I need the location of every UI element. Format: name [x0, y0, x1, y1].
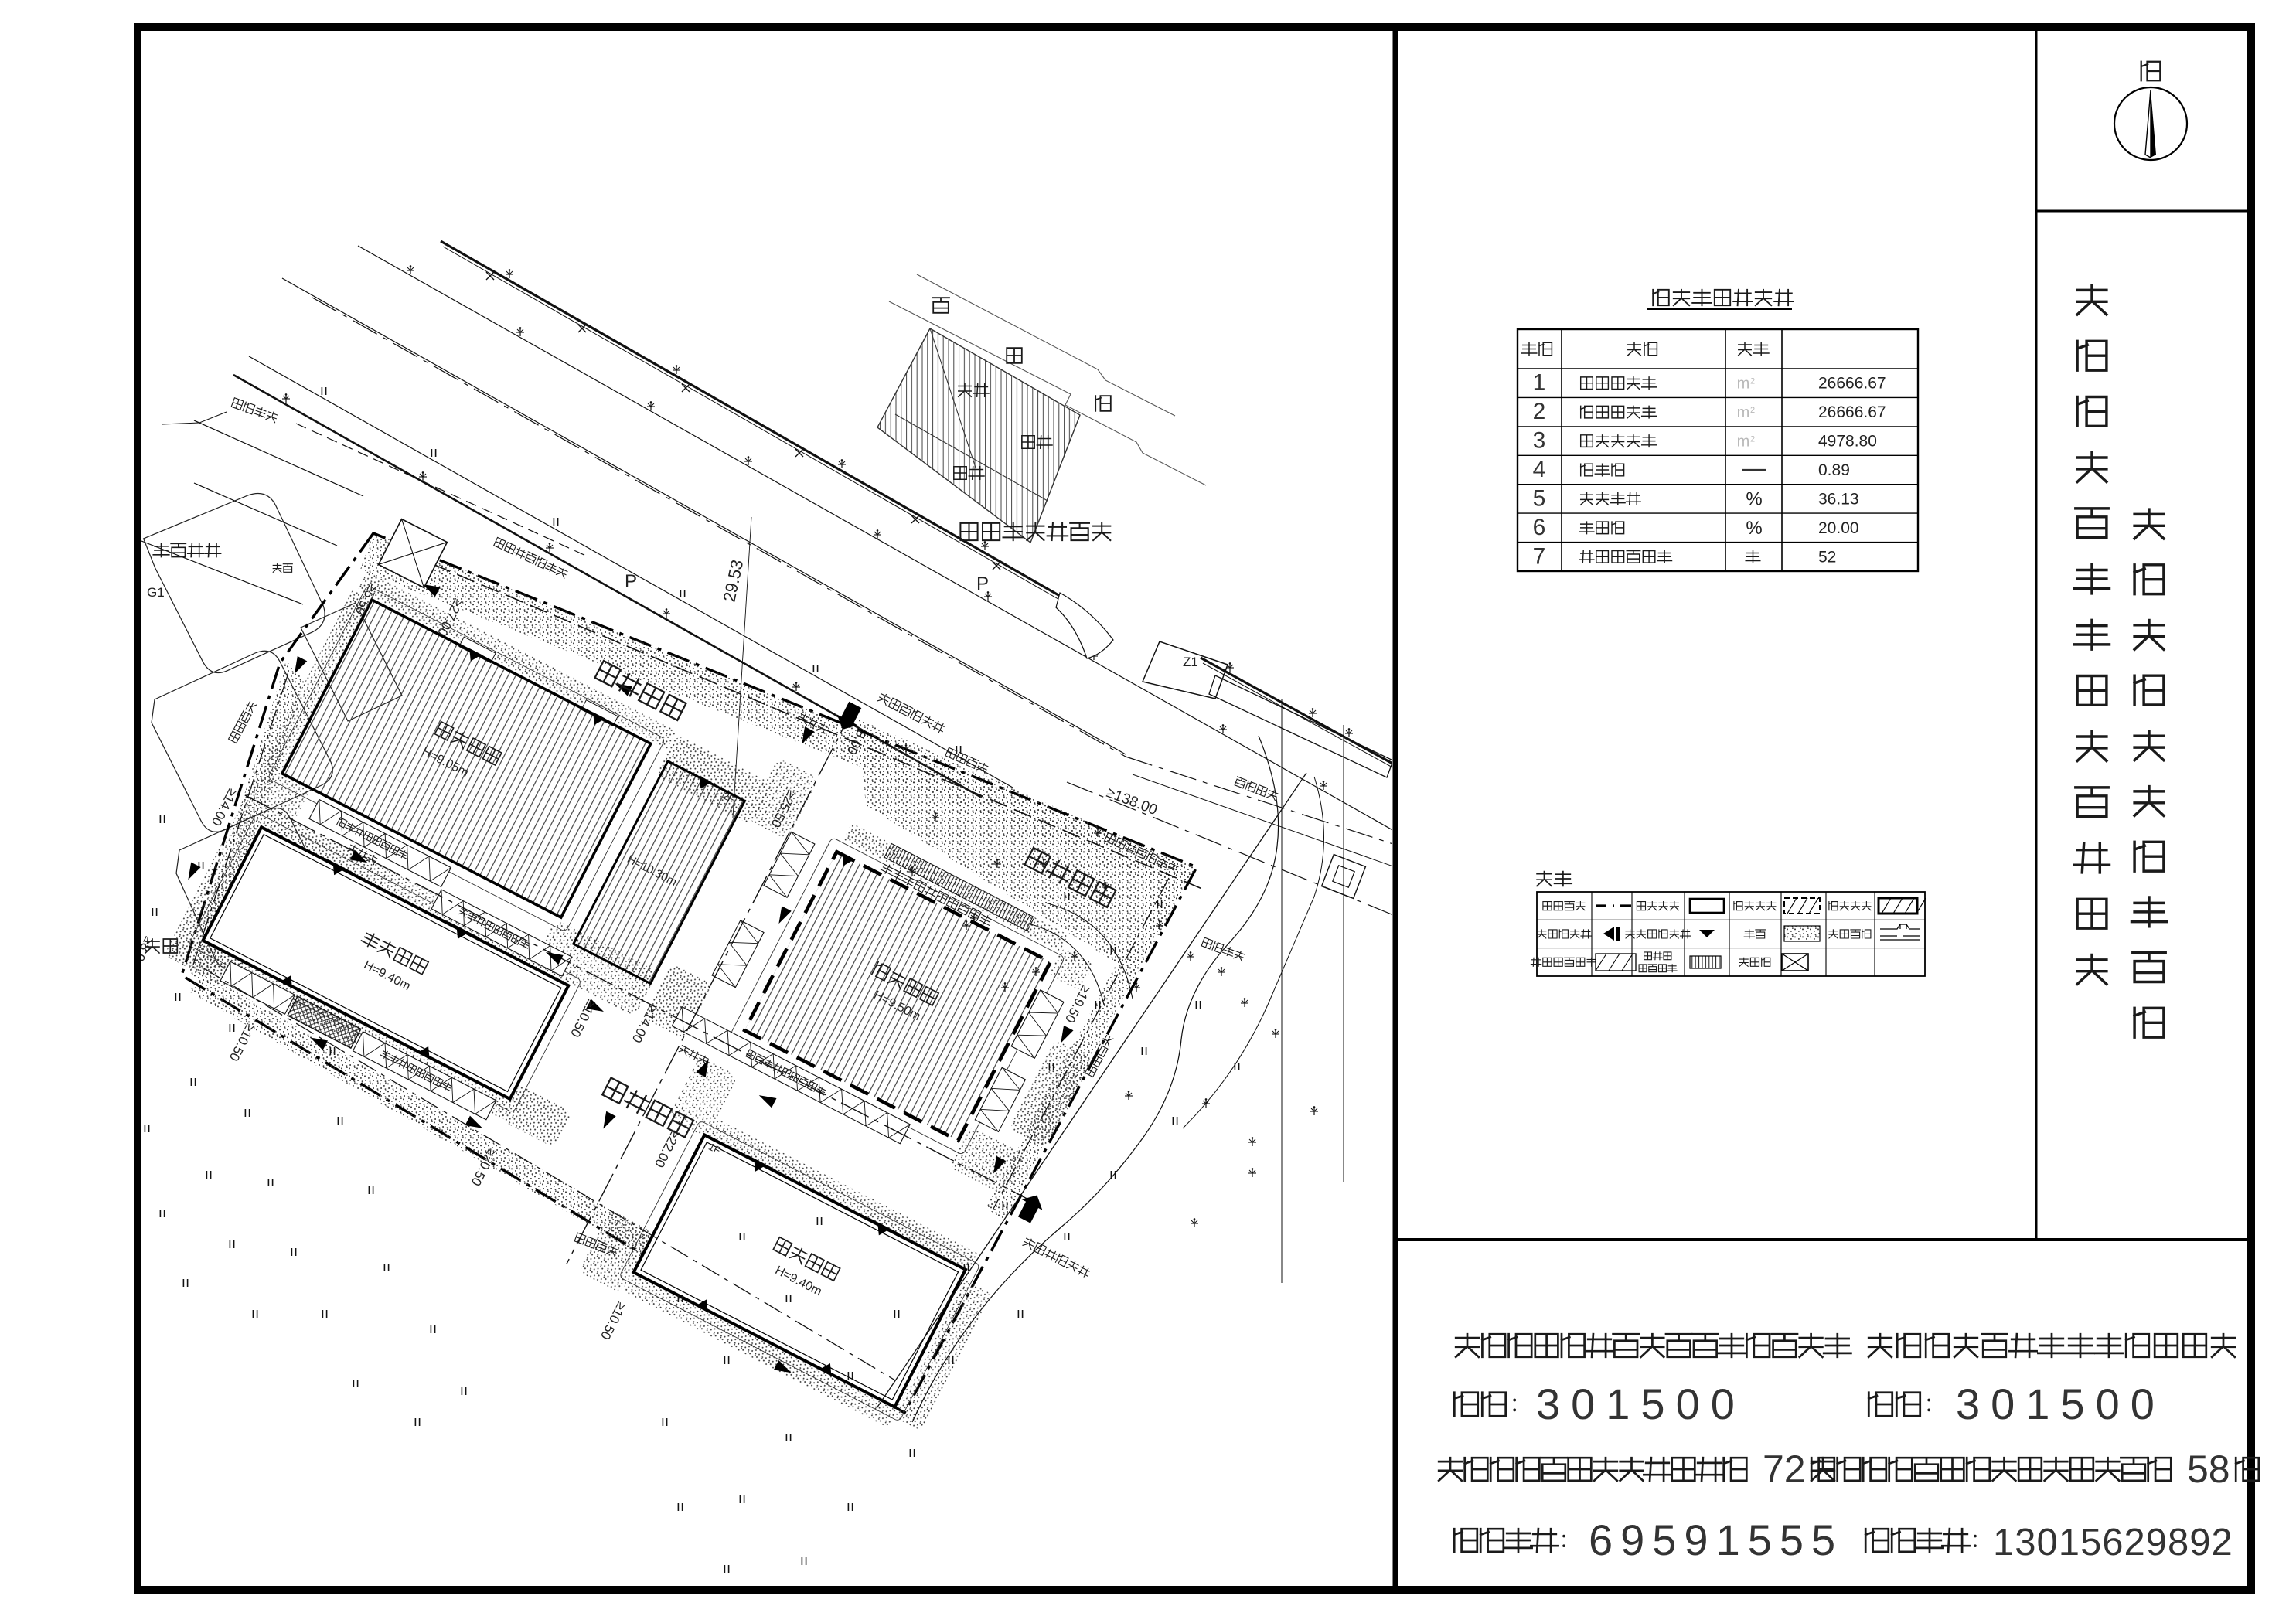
svg-text:%: % [1746, 518, 1762, 539]
svg-text:G1: G1 [147, 585, 165, 600]
svg-text:2: 2 [1750, 435, 1755, 444]
svg-text:m: m [1737, 376, 1750, 393]
svg-text:52: 52 [1818, 548, 1836, 566]
svg-text:2: 2 [1533, 399, 1546, 424]
svg-text:P: P [976, 573, 989, 594]
svg-text:2: 2 [1750, 377, 1755, 386]
svg-text:0.89: 0.89 [1818, 461, 1850, 479]
svg-text:4978.80: 4978.80 [1818, 433, 1877, 451]
svg-text:2: 2 [1750, 406, 1755, 415]
svg-text:301500: 301500 [1956, 1380, 2165, 1428]
svg-text:3: 3 [1533, 428, 1546, 454]
svg-text:69591555: 69591555 [1589, 1516, 1843, 1564]
svg-text:301500: 301500 [1536, 1380, 1746, 1428]
svg-text:1: 1 [1533, 370, 1546, 396]
svg-text:26666.67: 26666.67 [1818, 375, 1886, 393]
svg-text:m: m [1737, 434, 1750, 451]
svg-text:%: % [1746, 488, 1762, 509]
svg-text:72: 72 [1763, 1448, 1806, 1491]
svg-text:13015629892: 13015629892 [1993, 1522, 2233, 1563]
svg-text:m: m [1737, 404, 1750, 421]
svg-text:5: 5 [1533, 485, 1546, 511]
svg-text:36.13: 36.13 [1818, 490, 1859, 508]
svg-text:6: 6 [1533, 515, 1546, 540]
svg-text:58: 58 [2187, 1448, 2230, 1491]
svg-text:4: 4 [1533, 457, 1546, 482]
svg-text:26666.67: 26666.67 [1818, 403, 1886, 421]
svg-text:7: 7 [1533, 543, 1546, 569]
svg-text:P: P [625, 571, 637, 592]
svg-text:Z1: Z1 [1183, 655, 1198, 669]
svg-text:20.00: 20.00 [1818, 519, 1859, 537]
